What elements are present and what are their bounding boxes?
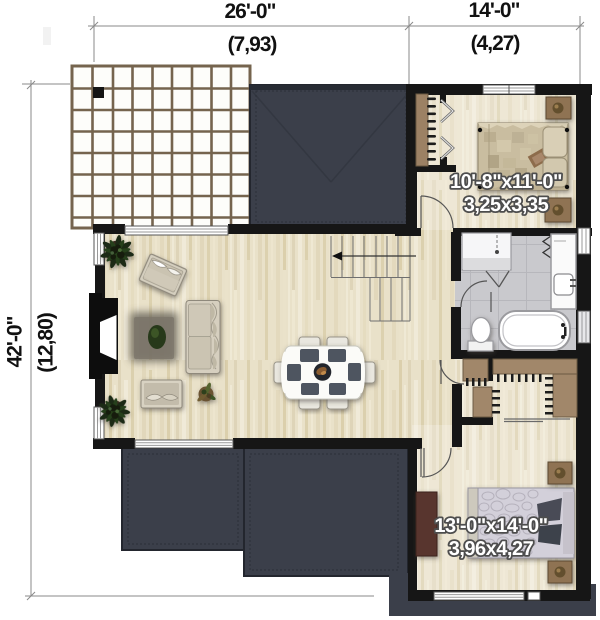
svg-text:13'-0"x14'-0": 13'-0"x14'-0" [434,515,547,537]
svg-text:(7,93): (7,93) [228,33,277,56]
svg-text:26'-0": 26'-0" [225,0,276,23]
svg-text:3,96x4,27: 3,96x4,27 [449,538,534,560]
svg-text:14'-0": 14'-0" [469,0,520,22]
svg-text:3,25x3,35: 3,25x3,35 [464,194,549,216]
svg-text:(4,27): (4,27) [471,32,520,55]
svg-text:10'-8"x11'-0": 10'-8"x11'-0" [450,171,562,193]
svg-text:(12,80): (12,80) [35,313,58,373]
svg-text:42'-0": 42'-0" [4,316,27,367]
